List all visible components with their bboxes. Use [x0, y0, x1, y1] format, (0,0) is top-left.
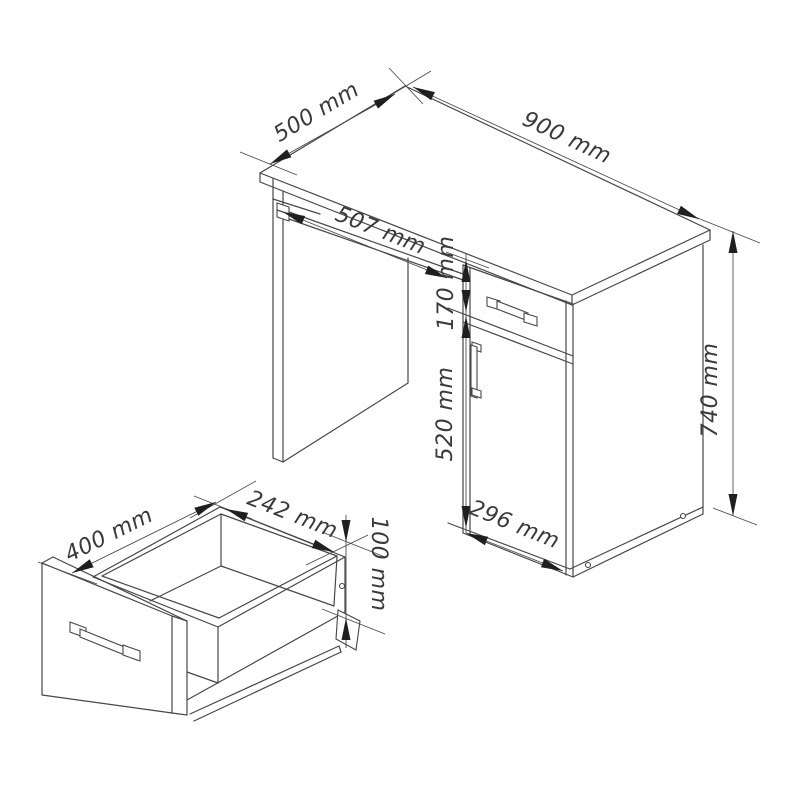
- dim-label-cabinet-width: 296 mm: [466, 496, 563, 555]
- desk-figure: 500 mm 900 mm 507 mm 170 mm 520 mm 296 m…: [240, 68, 760, 577]
- dim-label-drawer-height: 100 mm: [366, 517, 391, 612]
- foot-glide: [681, 514, 686, 519]
- foot-glide: [586, 563, 591, 568]
- dim-label-drawer-depth: 400 mm: [61, 503, 157, 568]
- drawer-front-handle: [70, 622, 140, 661]
- desk-dimension-annotations: 500 mm 900 mm 507 mm 170 mm 520 mm 296 m…: [240, 68, 760, 571]
- door-handle: [471, 342, 481, 398]
- dim-label-drawer-front-height: 170 mm: [434, 236, 459, 331]
- technical-drawing-page: 500 mm 900 mm 507 mm 170 mm 520 mm 296 m…: [0, 0, 800, 800]
- dim-label-desk-width: 900 mm: [518, 107, 615, 170]
- door-top-edge: [463, 322, 573, 364]
- dim-label-desk-height: 740 mm: [698, 343, 723, 438]
- drawer-handle: [487, 297, 537, 326]
- drawer-detail-figure: 400 mm 242 mm 100 mm: [38, 481, 391, 721]
- right-side-panel: [570, 245, 703, 577]
- cam-hole: [340, 584, 345, 589]
- dim-label-desk-depth: 500 mm: [270, 77, 364, 147]
- dim-label-door-height: 520 mm: [433, 367, 458, 462]
- drawer-slide-rail: [190, 610, 360, 721]
- desk-dimension-drawing: 500 mm 900 mm 507 mm 170 mm 520 mm 296 m…: [0, 0, 800, 800]
